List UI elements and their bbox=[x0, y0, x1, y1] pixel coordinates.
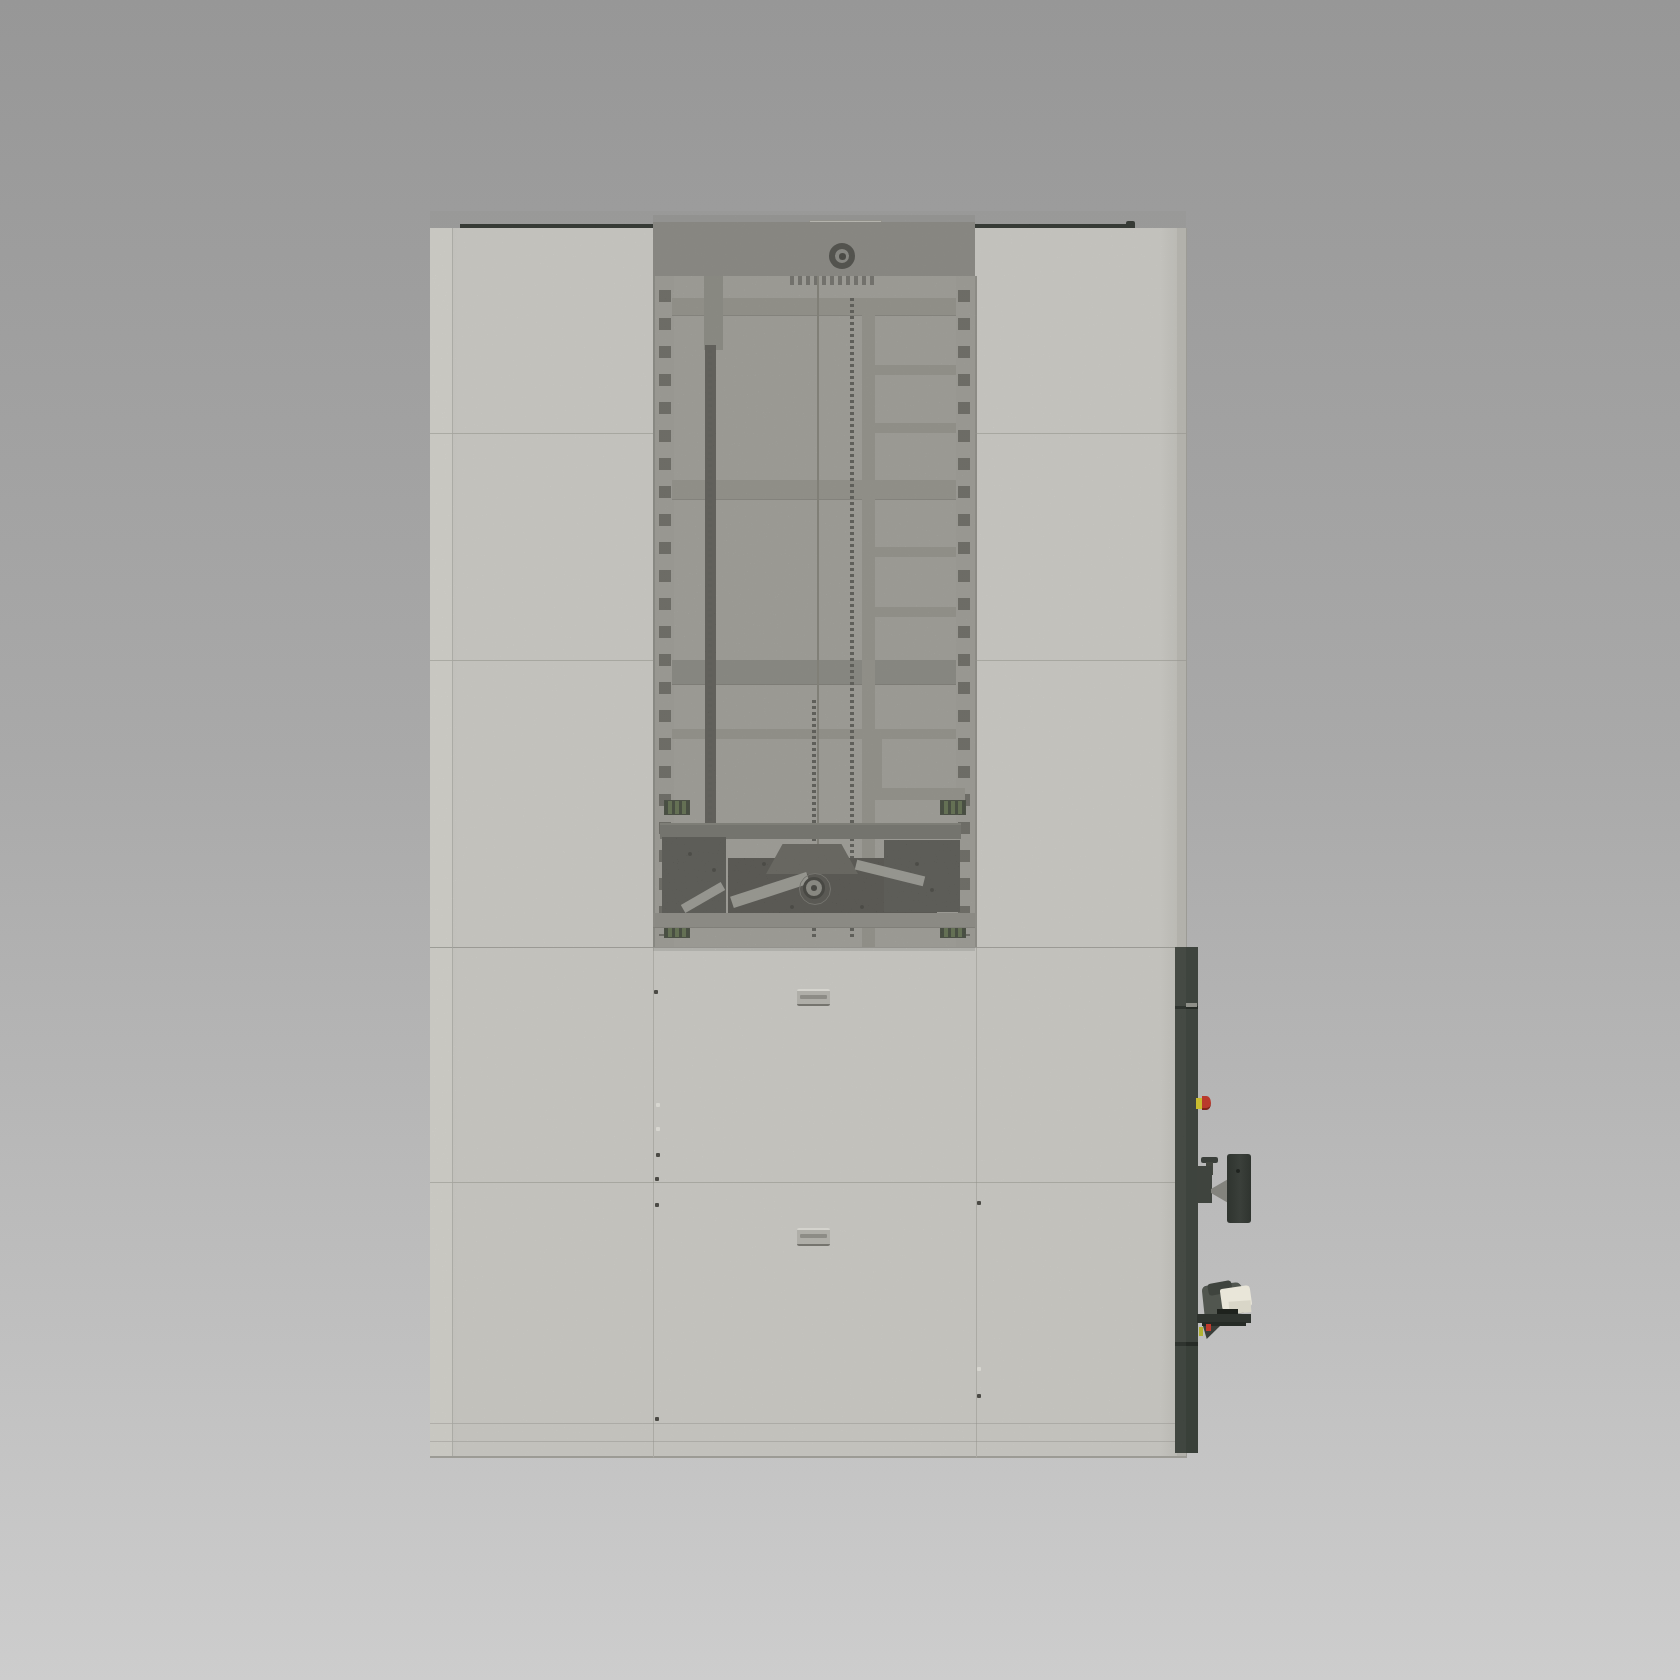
screw bbox=[656, 1103, 660, 1107]
left-panel-column bbox=[430, 228, 654, 1458]
bolt bbox=[688, 852, 692, 856]
right-panel-column bbox=[975, 228, 1187, 1458]
screw bbox=[656, 1127, 660, 1131]
ladder-rung bbox=[875, 607, 956, 617]
panel-handle-lower bbox=[797, 1228, 830, 1246]
panel-seam bbox=[975, 660, 1186, 661]
ladder-rung bbox=[875, 423, 956, 433]
screw bbox=[654, 990, 658, 994]
panel-seam bbox=[430, 947, 1186, 948]
vesa-plate-bolt bbox=[1236, 1169, 1240, 1173]
left-panel-edge-band bbox=[430, 228, 453, 1456]
drive-hub-core bbox=[839, 253, 846, 260]
screw bbox=[977, 1367, 981, 1371]
panel-seam bbox=[430, 660, 653, 661]
side-strip-notch bbox=[1186, 1003, 1197, 1007]
carriage-pulley-axle bbox=[811, 885, 817, 891]
panel-seam-vertical bbox=[452, 228, 453, 1456]
side-strip-lower-segment bbox=[1175, 1346, 1198, 1453]
panel-seam bbox=[430, 1423, 1186, 1424]
sensor-block-upper-left bbox=[664, 800, 690, 815]
bolt bbox=[790, 905, 794, 909]
mast-vertical-beam bbox=[862, 315, 875, 947]
lift-pillar-top bbox=[704, 276, 723, 350]
bolt bbox=[930, 888, 934, 892]
screw bbox=[977, 1201, 981, 1205]
opening-bottom-beam bbox=[653, 913, 975, 928]
header-chain-teeth bbox=[790, 276, 876, 285]
hoist-chain-right bbox=[850, 298, 854, 940]
center-lower-panel bbox=[653, 947, 977, 1458]
panel-seam bbox=[430, 433, 653, 434]
panel-handle-upper bbox=[797, 989, 830, 1006]
bolt bbox=[915, 862, 919, 866]
render-backdrop bbox=[0, 0, 1680, 1680]
screw bbox=[656, 1153, 660, 1157]
bolt bbox=[762, 862, 766, 866]
handle-slot bbox=[800, 1234, 827, 1238]
screw bbox=[655, 1203, 659, 1207]
shelf-red-indicator bbox=[1206, 1324, 1211, 1331]
handle-slot bbox=[800, 995, 827, 999]
ladder-lower-bar bbox=[873, 788, 965, 800]
ladder-rung bbox=[875, 547, 956, 557]
panel-seam bbox=[975, 433, 1186, 434]
panel-seam bbox=[430, 1441, 1186, 1442]
ladder-rung bbox=[875, 365, 956, 375]
screw bbox=[977, 1394, 981, 1398]
emergency-stop-button bbox=[1202, 1096, 1211, 1110]
hoist-cable bbox=[817, 276, 819, 888]
sensor-block-upper-right bbox=[940, 800, 966, 815]
bolt bbox=[860, 905, 864, 909]
drive-header bbox=[653, 222, 975, 277]
shelf-yellow-indicator bbox=[1199, 1327, 1203, 1336]
screw bbox=[655, 1177, 659, 1181]
bolt bbox=[712, 868, 716, 872]
monitor-bracket-wall-plate bbox=[1197, 1166, 1212, 1203]
monitor-vesa-plate bbox=[1227, 1154, 1251, 1223]
screw bbox=[655, 1417, 659, 1421]
panel-seam bbox=[430, 1182, 1186, 1183]
